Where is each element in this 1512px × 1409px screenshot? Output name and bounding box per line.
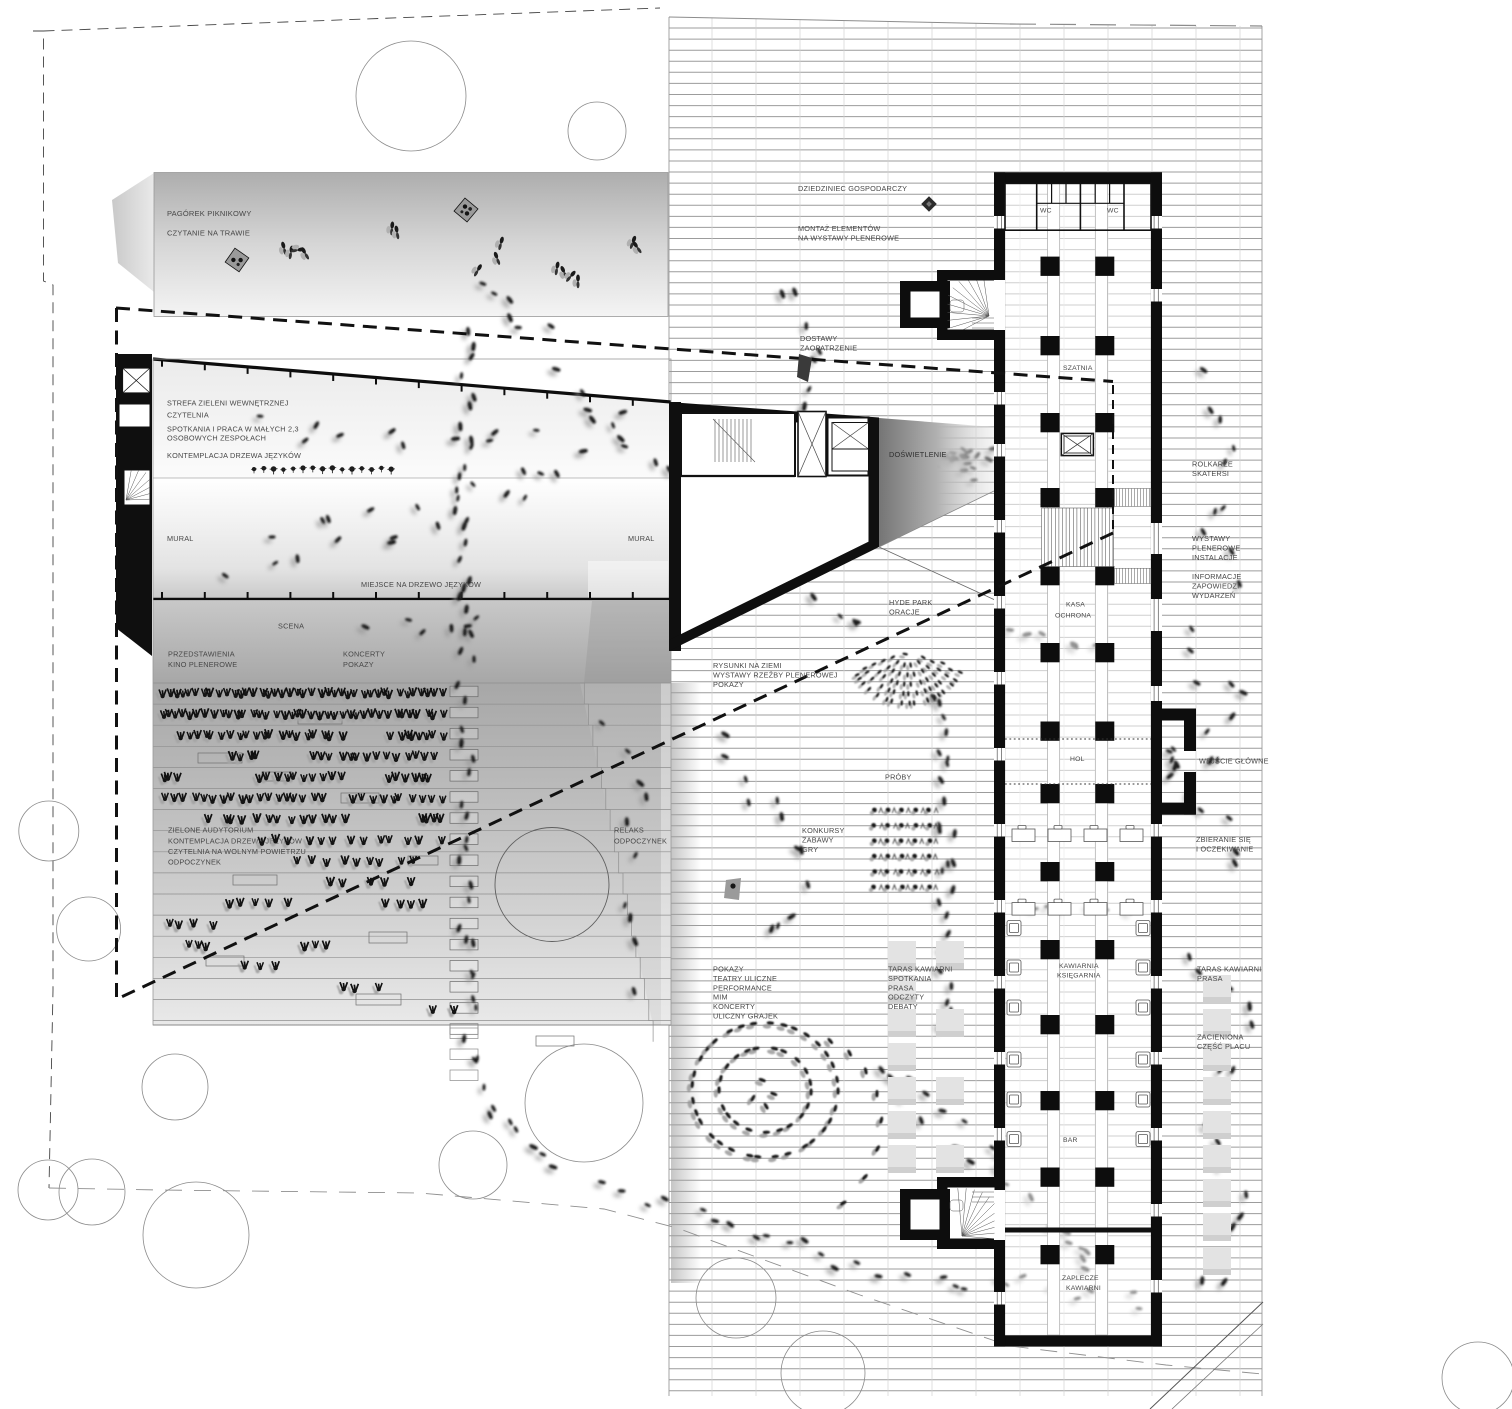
svg-text:KONKURSY: KONKURSY <box>802 826 845 835</box>
svg-text:KAWIARNIA: KAWIARNIA <box>1059 963 1099 970</box>
svg-text:SZATNIA: SZATNIA <box>1063 365 1093 372</box>
svg-text:ZAPLECZE: ZAPLECZE <box>1062 1275 1099 1282</box>
svg-text:RELAKS: RELAKS <box>614 826 644 835</box>
svg-text:WYSTAWY RZEŹBY PLENEROWEJ: WYSTAWY RZEŹBY PLENEROWEJ <box>713 670 838 679</box>
svg-text:KONCERTY: KONCERTY <box>343 650 385 659</box>
svg-text:MURAL: MURAL <box>628 534 655 543</box>
svg-text:PRASA: PRASA <box>888 983 914 992</box>
svg-text:KINO PLENEROWE: KINO PLENEROWE <box>168 660 237 669</box>
svg-text:KAWIARNI: KAWIARNI <box>1066 1285 1101 1292</box>
svg-text:STREFA ZIELENI WEWNĘTRZNEJ: STREFA ZIELENI WEWNĘTRZNEJ <box>167 399 289 408</box>
svg-text:PRASA: PRASA <box>1197 974 1223 983</box>
svg-text:ODPOCZYNEK: ODPOCZYNEK <box>168 858 221 867</box>
svg-text:ZAPOWIEDZI: ZAPOWIEDZI <box>1192 581 1239 590</box>
svg-text:WEJŚCIE GŁÓWNE: WEJŚCIE GŁÓWNE <box>1199 757 1269 766</box>
svg-text:OCHRONA: OCHRONA <box>1055 613 1091 620</box>
svg-text:MIM: MIM <box>713 993 728 1002</box>
svg-text:CZYTELNIA: CZYTELNIA <box>167 411 209 420</box>
svg-text:RYSUNKI NA ZIEMI: RYSUNKI NA ZIEMI <box>713 661 782 670</box>
svg-text:SKATERSI: SKATERSI <box>1192 469 1229 478</box>
svg-text:ULICZNY GRAJEK: ULICZNY GRAJEK <box>713 1012 778 1021</box>
svg-text:CZYTELNIA NA WOLNYM POWIETRZU: CZYTELNIA NA WOLNYM POWIETRZU <box>168 847 306 856</box>
svg-text:HOL: HOL <box>1070 756 1085 763</box>
svg-text:PRZEDSTAWIENIA: PRZEDSTAWIENIA <box>168 650 235 659</box>
svg-text:KONTEMPLACJA DRZEWA JĘZYKÓW: KONTEMPLACJA DRZEWA JĘZYKÓW <box>167 451 301 460</box>
svg-text:WYDARZEŃ: WYDARZEŃ <box>1192 591 1235 600</box>
svg-text:CZYTANIE NA TRAWIE: CZYTANIE NA TRAWIE <box>167 229 250 238</box>
svg-text:NA WYSTAWY PLENEROWE: NA WYSTAWY PLENEROWE <box>798 233 899 242</box>
svg-text:BAR: BAR <box>1063 1137 1078 1144</box>
svg-text:ORACJE: ORACJE <box>889 607 920 616</box>
svg-text:WC: WC <box>1040 208 1052 215</box>
svg-text:TARAS KAWIARNI: TARAS KAWIARNI <box>1197 965 1261 974</box>
svg-text:PLENEROWE: PLENEROWE <box>1192 543 1240 552</box>
svg-text:WYSTAWY: WYSTAWY <box>1192 534 1230 543</box>
svg-text:HYDE PARK: HYDE PARK <box>889 598 932 607</box>
svg-text:SPOTKANIA: SPOTKANIA <box>888 974 932 983</box>
svg-text:ZAOPATRZENIE: ZAOPATRZENIE <box>800 343 857 352</box>
svg-text:POKAZY: POKAZY <box>713 680 744 689</box>
svg-text:POKAZY: POKAZY <box>713 965 744 974</box>
svg-text:ZABAWY: ZABAWY <box>802 835 834 844</box>
svg-text:TARAS KAWIARNI: TARAS KAWIARNI <box>888 965 952 974</box>
svg-text:ROLKARZE: ROLKARZE <box>1192 460 1233 469</box>
svg-text:PRÓBY: PRÓBY <box>885 773 912 782</box>
svg-text:PAGÓREK PIKNIKOWY: PAGÓREK PIKNIKOWY <box>167 209 252 218</box>
svg-text:OSOBOWYCH ZESPOŁACH: OSOBOWYCH ZESPOŁACH <box>167 434 266 443</box>
svg-text:I OCZEKIWANIE: I OCZEKIWANIE <box>1196 844 1253 853</box>
svg-text:TEATRY ULICZNE: TEATRY ULICZNE <box>713 974 777 983</box>
svg-text:MONTAŻ ELEMENTÓW: MONTAŻ ELEMENTÓW <box>798 224 881 233</box>
svg-text:DZIEDZINIEC GOSPODARCZY: DZIEDZINIEC GOSPODARCZY <box>798 184 907 193</box>
svg-text:PERFORMANCE: PERFORMANCE <box>713 983 772 992</box>
svg-text:ODPOCZYNEK: ODPOCZYNEK <box>614 837 667 846</box>
svg-text:DOSTAWY: DOSTAWY <box>800 334 837 343</box>
svg-text:WC: WC <box>1107 208 1119 215</box>
svg-text:GRY: GRY <box>802 845 818 854</box>
svg-text:MURAL: MURAL <box>167 534 194 543</box>
svg-text:KASA: KASA <box>1066 602 1085 609</box>
svg-text:ODCZYTY: ODCZYTY <box>888 993 924 1002</box>
svg-text:DEBATY: DEBATY <box>888 1002 918 1011</box>
svg-text:ZBIERANIE SIĘ: ZBIERANIE SIĘ <box>1196 835 1251 844</box>
svg-text:INFORMACJE: INFORMACJE <box>1192 572 1241 581</box>
svg-text:ZACIENIONA: ZACIENIONA <box>1197 1033 1244 1042</box>
svg-text:KONCERTY: KONCERTY <box>713 1002 755 1011</box>
svg-text:KSIĘGARNIA: KSIĘGARNIA <box>1057 973 1101 980</box>
svg-text:SPOTKANIA I PRACA W MAŁYCH 2,3: SPOTKANIA I PRACA W MAŁYCH 2,3 <box>167 425 299 434</box>
svg-text:POKAZY: POKAZY <box>343 660 374 669</box>
svg-text:INSTALACJE: INSTALACJE <box>1192 553 1238 562</box>
svg-text:DOŚWIETLENIE: DOŚWIETLENIE <box>889 450 947 459</box>
svg-text:CZĘŚĆ PLACU: CZĘŚĆ PLACU <box>1197 1042 1250 1051</box>
svg-text:SCENA: SCENA <box>278 622 304 631</box>
